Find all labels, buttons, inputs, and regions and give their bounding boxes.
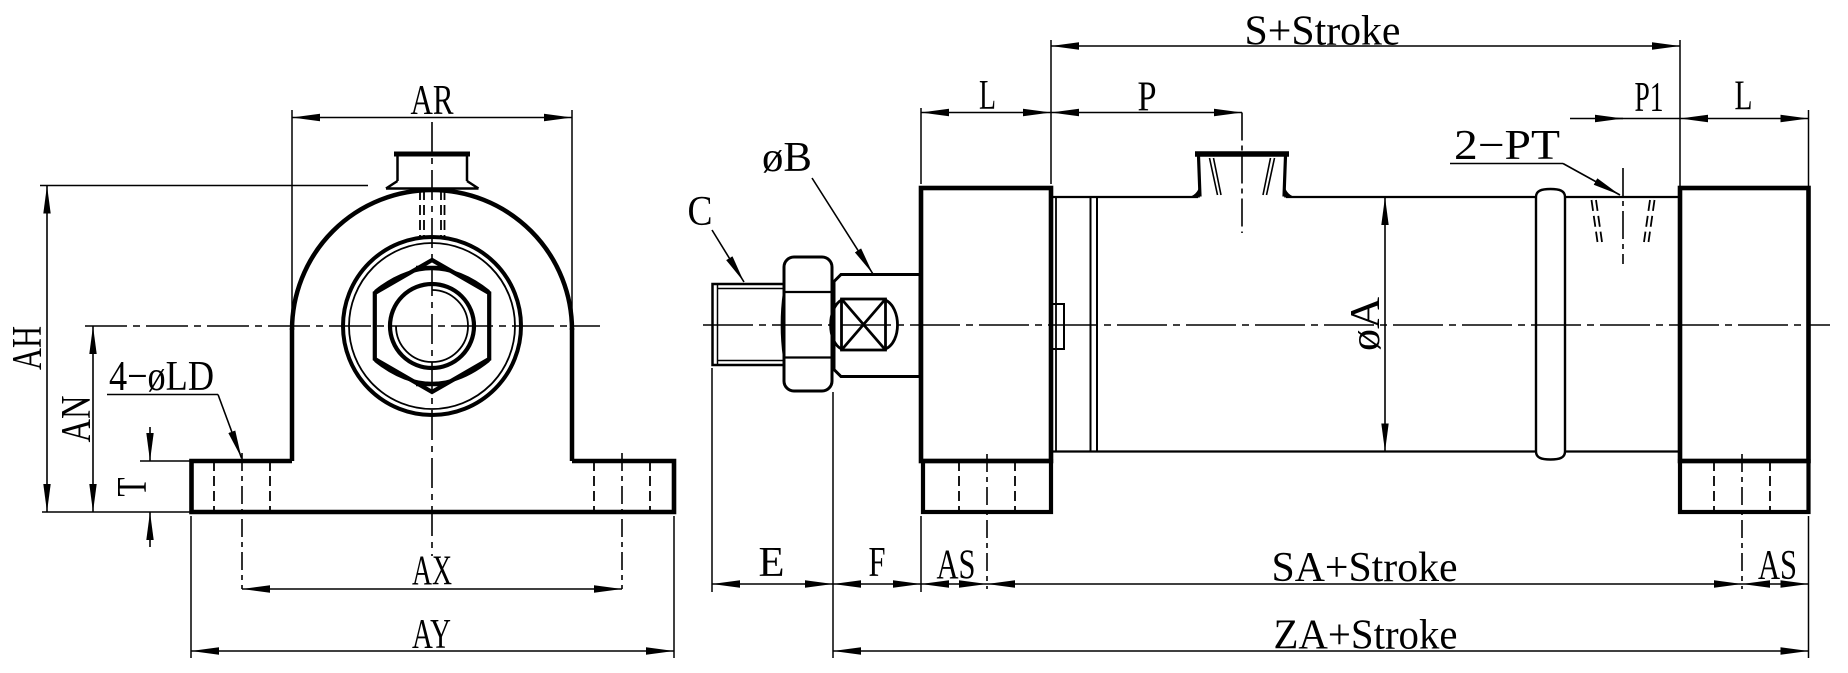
- svg-text:AY: AY: [412, 611, 451, 658]
- svg-text:AR: AR: [411, 77, 454, 124]
- svg-text:L: L: [979, 72, 996, 119]
- svg-text:P: P: [1138, 74, 1157, 121]
- svg-text:S+Stroke: S+Stroke: [1245, 8, 1401, 55]
- svg-text:SA+Stroke: SA+Stroke: [1272, 544, 1458, 591]
- svg-text:C: C: [688, 188, 713, 235]
- svg-text:L: L: [1735, 73, 1753, 120]
- svg-text:AN: AN: [53, 396, 100, 443]
- svg-text:AS: AS: [937, 542, 976, 589]
- svg-text:AS: AS: [1758, 542, 1797, 589]
- svg-text:AX: AX: [412, 548, 452, 595]
- svg-text:F: F: [869, 539, 886, 586]
- svg-text:AH: AH: [4, 326, 51, 370]
- svg-text:4−øLD: 4−øLD: [109, 353, 214, 400]
- svg-text:øB: øB: [762, 134, 812, 181]
- svg-text:øA: øA: [1342, 297, 1389, 351]
- svg-text:E: E: [759, 539, 785, 586]
- svg-text:T: T: [109, 477, 156, 496]
- svg-text:2−PT: 2−PT: [1454, 122, 1560, 169]
- svg-text:P1: P1: [1635, 74, 1664, 121]
- svg-text:ZA+Stroke: ZA+Stroke: [1274, 612, 1458, 659]
